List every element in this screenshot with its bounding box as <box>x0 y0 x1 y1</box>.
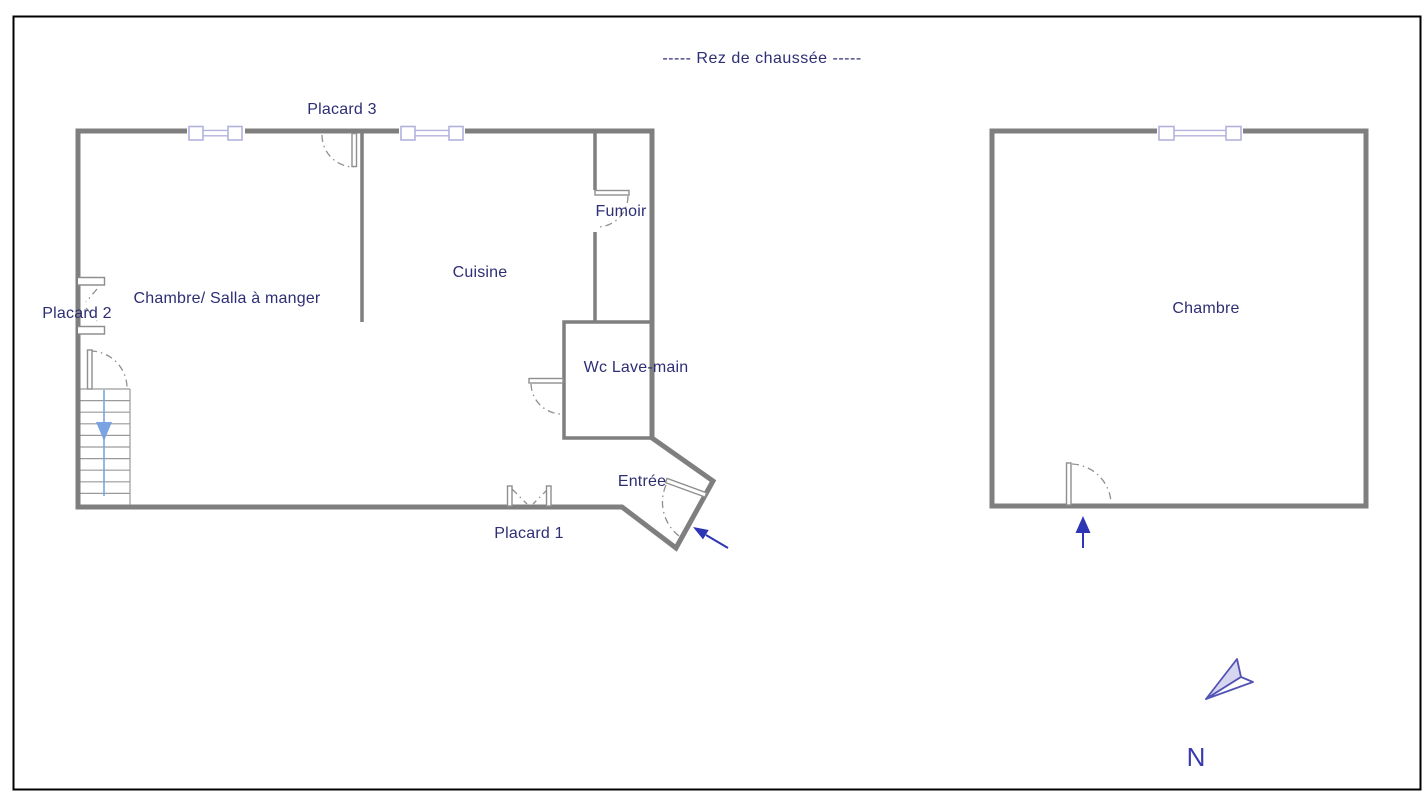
room-label-cuisine: Cuisine <box>453 264 508 281</box>
door-stairs <box>88 350 128 389</box>
closet-label-placard3: Placard 3 <box>307 101 376 118</box>
room-label-entree: Entrée <box>618 473 666 490</box>
window-icon <box>1157 127 1243 141</box>
left-building: Placard 3 Placard 2 Chambre/ Salla à man… <box>42 101 728 548</box>
closet-label-placard1: Placard 1 <box>494 525 563 542</box>
floor-plan-canvas: ----- Rez de chaussée ----- <box>0 0 1426 800</box>
stairs-down-arrow-icon <box>96 390 112 496</box>
entrance-arrow-icon <box>693 527 728 548</box>
right-building-outer-walls <box>992 131 1366 506</box>
closet-placard1 <box>508 486 552 506</box>
door-wc <box>529 379 563 415</box>
window-icon <box>399 127 465 141</box>
room-label-fumoir: Fumoir <box>596 203 647 220</box>
room-label-chambre: Chambre <box>1172 300 1239 317</box>
door-placard3 <box>322 134 357 168</box>
wall-wc-enclosure <box>564 322 652 438</box>
right-building: Chambre <box>992 127 1366 549</box>
floor-title: ----- Rez de chaussée ----- <box>662 50 861 67</box>
closet-label-placard2: Placard 2 <box>42 305 111 322</box>
entrance-arrow-icon <box>1076 516 1091 548</box>
window-icon <box>187 127 245 141</box>
north-label: N <box>1187 742 1206 772</box>
north-indicator: N <box>1187 659 1253 772</box>
door-chambre <box>1067 463 1112 505</box>
room-label-wc-lave-main: Wc Lave-main <box>584 359 689 376</box>
room-label-chambre-salle-a-manger: Chambre/ Salla à manger <box>134 290 321 307</box>
staircase <box>81 389 131 505</box>
